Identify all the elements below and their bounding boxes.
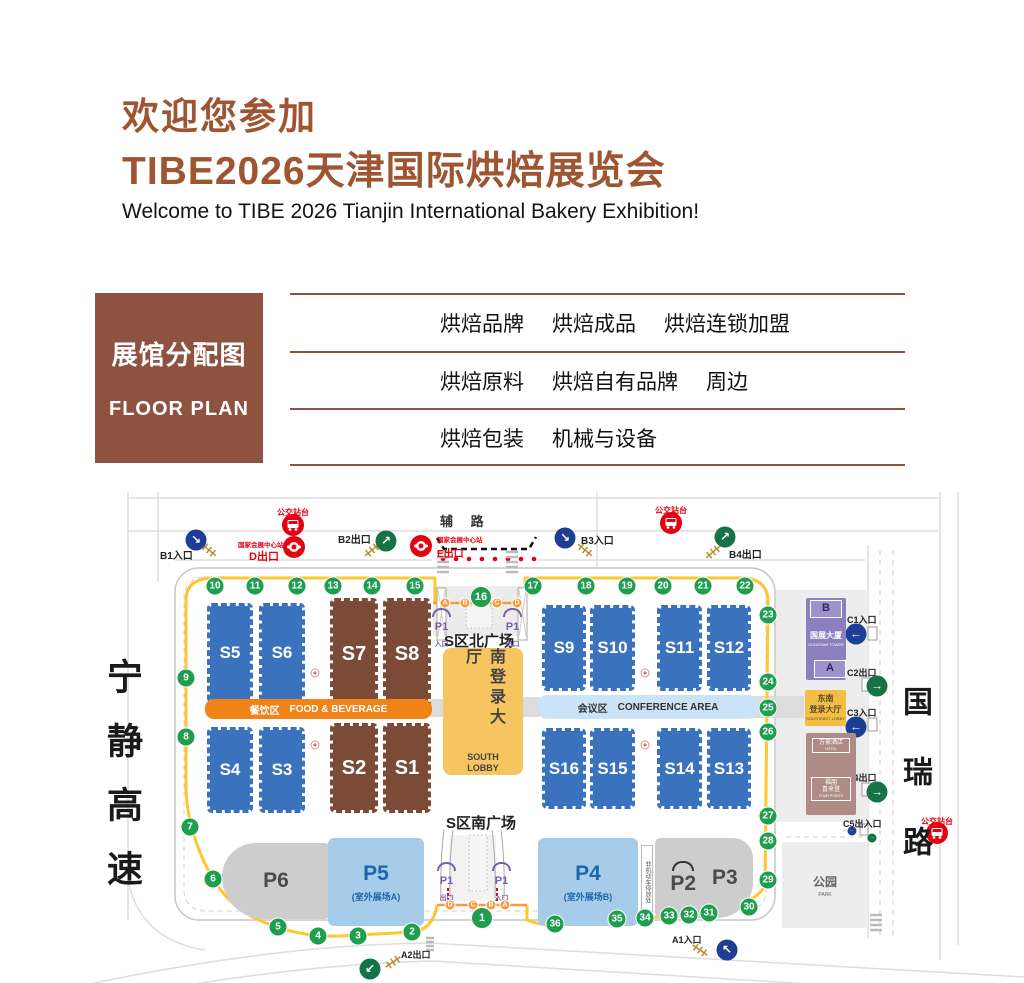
hall-label: S5 xyxy=(220,643,241,663)
route-stop: 28 xyxy=(759,832,778,851)
p1-exit-south: P1 出口 xyxy=(437,862,456,904)
conference-area-bar: 会议区 CONFERENCE AREA xyxy=(538,695,758,719)
hall-s5: S5 xyxy=(207,603,253,703)
p1-label: P1 xyxy=(506,621,519,633)
route-stop: 19 xyxy=(618,577,637,596)
p1-sub: 出口 xyxy=(506,641,520,648)
entrance-arrow-icon: ↖ xyxy=(717,940,738,961)
route-stop: 4 xyxy=(309,927,328,946)
metro-station-label: 国家会展中心站 xyxy=(437,534,483,544)
legend-item: 周边 xyxy=(706,366,748,396)
legend-item: 烘焙品牌 xyxy=(440,308,524,338)
hall-label: S4 xyxy=(220,760,241,780)
route-stop: 35 xyxy=(608,910,627,929)
route-stop: 6 xyxy=(204,870,223,889)
legend-item: 机械与设备 xyxy=(552,423,657,453)
p1-arc-icon xyxy=(437,862,456,871)
hall-label: S7 xyxy=(342,643,366,666)
exit-arrow-icon: → xyxy=(867,782,888,803)
exit-arrow-icon: → xyxy=(867,676,888,697)
hall-s3: S3 xyxy=(259,727,305,813)
parking-sublabel: (室外展场B) xyxy=(564,890,613,903)
hall-label: S3 xyxy=(272,760,293,780)
tower-label-en: GUOZHAN TOWER xyxy=(806,642,846,647)
legend-hall-label: S2馆 xyxy=(290,363,440,399)
hall-s8: S8 xyxy=(383,598,431,710)
floor-plan-map: 宁静高速 国瑞路 辅 路 公交站台 公交站台 公交站台 国家会展中心站 D出口 … xyxy=(0,490,1024,983)
p1-label: P1 xyxy=(440,875,453,887)
route-stop: 36 xyxy=(546,915,565,934)
parking-sublabel: (室外展场A) xyxy=(352,890,401,903)
route-stop: 20 xyxy=(654,577,673,596)
route-stop: 23 xyxy=(759,606,778,625)
hall-s14: S14 xyxy=(657,728,702,809)
route-stop: 27 xyxy=(759,807,778,826)
route-stop: 31 xyxy=(700,904,719,923)
route-stop: 24 xyxy=(759,673,778,692)
fb-label-en: FOOD & BEVERAGE xyxy=(290,704,388,715)
se-lobby-zh2: 登录大厅 xyxy=(805,704,846,715)
food-beverage-bar: 餐饮区 FOOD & BEVERAGE xyxy=(205,699,432,719)
route-stop: 1 xyxy=(471,907,493,929)
hall-label: S14 xyxy=(664,759,694,779)
route-stop: 32 xyxy=(680,906,699,925)
entrance-arrow-icon: ↘ xyxy=(186,530,207,551)
parking-p6: P6 xyxy=(222,843,330,919)
south-lobby-en2: LOBBY xyxy=(467,763,499,773)
tower-label-zh: 国展大厦 xyxy=(806,630,846,641)
route-stop: 10 xyxy=(206,577,225,596)
exit-arrow-icon: ↙ xyxy=(360,959,381,980)
south-lobby-en1: SOUTH xyxy=(467,752,499,762)
hall-label: S10 xyxy=(597,638,627,658)
hotel2-zh2: 喜来登 xyxy=(822,787,840,793)
hall-s10: S10 xyxy=(590,605,635,691)
hotel2-zh1: 福朋 xyxy=(825,780,837,786)
hall-s2: S2 xyxy=(330,723,378,813)
hall-label: S11 xyxy=(665,638,694,658)
route-letter: D xyxy=(445,900,456,911)
entrance-arrow-icon: ← xyxy=(848,827,857,836)
south-lobby-label-en: SOUTH LOBBY xyxy=(467,752,499,775)
hotel1-en: HOTEL xyxy=(813,747,849,751)
floor-plan-badge-zh: 展馆分配图 xyxy=(111,335,246,372)
hall-s7: S7 xyxy=(330,598,378,710)
legend-row-s2: S2馆 烘焙原料 烘焙自有品牌 周边 xyxy=(290,353,905,409)
p1-exit-north: P1 出口 xyxy=(503,608,522,650)
exit-arrow-icon: ↗ xyxy=(715,527,736,548)
parking-p5: P5 (室外展场A) xyxy=(328,838,424,926)
route-stop: 26 xyxy=(759,723,778,742)
hall-s6: S6 xyxy=(259,603,305,703)
gate-a1-label: A1入口 xyxy=(672,933,702,946)
page-title-line1: 欢迎您参加 xyxy=(122,86,317,140)
route-letter: D xyxy=(512,598,523,609)
hall-s11: S11 xyxy=(657,605,702,691)
hall-label: S13 xyxy=(714,759,744,779)
bus-stop-label: 公交站台 xyxy=(655,505,687,516)
hall-label: S9 xyxy=(554,638,575,658)
page-title-line2: TIBE2026天津国际烘焙展览会 xyxy=(122,140,666,196)
p1-arc-icon xyxy=(503,608,522,617)
route-stop: 15 xyxy=(406,577,425,596)
route-letter: B xyxy=(460,598,471,609)
route-stop: 34 xyxy=(636,909,655,928)
legend-item: 烘焙包装 xyxy=(440,423,524,453)
gate-a2-label: A2出口 xyxy=(401,948,431,961)
conference-label-zh: 会议区 xyxy=(578,700,608,715)
route-stop: 30 xyxy=(740,898,759,917)
fb-label-zh: 餐饮区 xyxy=(250,702,280,717)
p1-arc-icon xyxy=(492,862,511,871)
route-letter: A xyxy=(500,900,511,911)
hall-s4: S4 xyxy=(207,727,253,813)
south-plaza-label: S区南广场 xyxy=(446,812,516,833)
park-area: 公园 PARK xyxy=(782,842,868,928)
bus-stop-label: 公交站台 xyxy=(921,816,953,827)
route-stop: 17 xyxy=(524,577,543,596)
hotel-tag-1: 万豪酒店 HOTEL xyxy=(812,738,850,753)
bus-stop-label: 公交站台 xyxy=(277,507,309,518)
hall-label: S8 xyxy=(395,643,419,666)
metro-exit-d-label: D出口 xyxy=(249,548,279,564)
hotel-building: 万豪酒店 HOTEL 福朋 喜来登 FOUR POINTS xyxy=(806,733,856,815)
metro-exit-e-label: E出口 xyxy=(437,545,464,560)
legend-hall-label: S1馆 xyxy=(290,305,440,341)
route-stop: 21 xyxy=(694,577,713,596)
east-road-name: 国瑞路 xyxy=(892,686,936,896)
tower-block-a: A xyxy=(814,660,846,678)
conference-label-en: CONFERENCE AREA xyxy=(618,702,719,713)
route-stop: 7 xyxy=(181,818,200,837)
p2-arc-icon xyxy=(672,861,694,871)
se-lobby-en: SOUTHEAST LOBBY xyxy=(805,716,846,721)
gate-b3-label: B3入口 xyxy=(581,532,614,547)
p1-label: P1 xyxy=(435,621,448,633)
p1-entrance-south: P1 入口 xyxy=(492,862,511,904)
route-stop: 22 xyxy=(736,577,755,596)
route-letter: A xyxy=(440,598,451,609)
hall-s13: S13 xyxy=(707,728,751,809)
south-lobby: 南登录大厅 SOUTH LOBBY xyxy=(443,648,523,775)
legend-hall-label: S7-S8馆 xyxy=(290,420,440,456)
hall-s1: S1 xyxy=(383,723,431,813)
west-road-name: 宁静高速 xyxy=(96,658,148,914)
route-stop: 13 xyxy=(324,577,343,596)
gate-b4-label: B4出口 xyxy=(729,546,762,561)
route-stop: 29 xyxy=(759,871,778,890)
park-label-zh: 公园 xyxy=(813,873,837,890)
parking-p2: P2 xyxy=(670,861,696,896)
hall-label: S1 xyxy=(395,757,419,780)
p1-entrance-north: P1 入口 xyxy=(432,608,451,650)
exit-arrow-icon: → xyxy=(868,834,877,843)
parking-label: P6 xyxy=(263,869,289,893)
hall-label: S15 xyxy=(597,759,627,779)
parking-label: P3 xyxy=(712,866,738,890)
parking-label: P5 xyxy=(363,862,389,886)
guozhan-tower: B 国展大厦 GUOZHAN TOWER A xyxy=(806,598,846,680)
hall-s12: S12 xyxy=(707,605,751,691)
park-label-en: PARK xyxy=(818,892,831,898)
hall-s15: S15 xyxy=(590,728,635,809)
legend-row-s7s8: S7-S8馆 烘焙包装 机械与设备 xyxy=(290,410,905,466)
legend-item: 烘焙连锁加盟 xyxy=(664,308,790,338)
route-stop: 18 xyxy=(577,577,596,596)
page-subtitle: Welcome to TIBE 2026 Tianjin Internation… xyxy=(122,200,699,224)
southeast-lobby: 东南 登录大厅 SOUTHEAST LOBBY xyxy=(805,690,846,726)
p1-label: P1 xyxy=(495,875,508,887)
legend-divider xyxy=(290,464,905,466)
legend-item: 烘焙自有品牌 xyxy=(552,366,678,396)
route-stop: 2 xyxy=(403,923,422,942)
entrance-arrow-icon: ↘ xyxy=(555,528,576,549)
gate-b1-label: B1入口 xyxy=(160,547,193,562)
exit-arrow-icon: ↗ xyxy=(376,531,397,552)
se-lobby-zh1: 东南 xyxy=(805,693,846,704)
hall-s9: S9 xyxy=(542,605,586,691)
hotel1-zh: 万豪酒店 xyxy=(819,740,843,746)
floor-plan-badge: 展馆分配图 FLOOR PLAN xyxy=(95,293,263,463)
legend-item: 烘焙原料 xyxy=(440,366,524,396)
p1-arc-icon xyxy=(432,608,451,617)
hall-label: S2 xyxy=(342,757,366,780)
north-road-name: 辅 路 xyxy=(440,511,491,530)
p1-sub: 入口 xyxy=(435,641,449,648)
lobby-connector-west xyxy=(430,699,444,717)
route-stop: 9 xyxy=(177,669,196,688)
parking-label: P2 xyxy=(670,872,696,895)
legend-row-s1: S1馆 烘焙品牌 烘焙成品 烘焙连锁加盟 xyxy=(290,295,905,351)
gate-b2-label: B2出口 xyxy=(338,531,371,546)
hall-s16: S16 xyxy=(542,728,586,809)
parking-label: P4 xyxy=(575,862,601,886)
route-letter: C xyxy=(492,598,503,609)
entrance-arrow-icon: ← xyxy=(846,624,867,645)
tower-block-b: B xyxy=(810,600,842,618)
hall-label: S16 xyxy=(549,759,579,779)
route-stop: 12 xyxy=(288,577,307,596)
route-stop: 3 xyxy=(349,927,368,946)
floor-plan-badge-en: FLOOR PLAN xyxy=(109,398,249,421)
hotel-tag-2: 福朋 喜来登 FOUR POINTS xyxy=(811,777,851,801)
route-stop: 25 xyxy=(759,699,778,718)
hall-label: S6 xyxy=(272,643,293,663)
route-stop: 33 xyxy=(660,907,679,926)
legend-item: 烘焙成品 xyxy=(552,308,636,338)
route-stop: 11 xyxy=(246,577,265,596)
route-stop: 8 xyxy=(177,728,196,747)
route-stop: 16 xyxy=(470,586,492,608)
south-lobby-label-zh: 南登录大厅 xyxy=(459,648,507,747)
route-stop: 14 xyxy=(363,577,382,596)
poster-page: 欢迎您参加 TIBE2026天津国际烘焙展览会 Welcome to TIBE … xyxy=(0,0,1024,983)
hotel2-en: FOUR POINTS xyxy=(812,794,850,798)
hall-label: S12 xyxy=(714,638,744,658)
route-stop: 5 xyxy=(269,918,288,937)
